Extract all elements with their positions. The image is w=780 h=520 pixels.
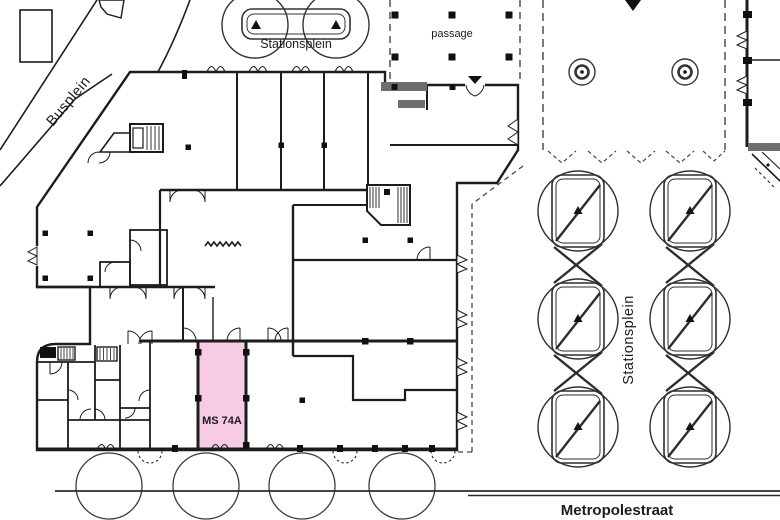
tree-canopy-symbol (76, 453, 142, 519)
label-busplein: Busplein (44, 73, 95, 129)
column-symbol (449, 12, 456, 19)
column-symbol (88, 231, 94, 237)
column-symbol (243, 395, 250, 402)
door-swing-icon (457, 255, 467, 273)
bullseye-column-icon (569, 59, 595, 85)
column-symbol (195, 395, 202, 402)
column-symbol (322, 143, 328, 149)
column-symbol (182, 70, 187, 79)
tree-canopy-symbol (269, 453, 335, 519)
building-east-annex (737, 0, 780, 187)
hatched-wall (381, 82, 427, 91)
column-symbol (407, 338, 414, 345)
column-symbol (743, 99, 752, 106)
column-symbol (743, 57, 752, 64)
door-swing-icon (457, 412, 467, 430)
hatched-wall (398, 100, 425, 108)
bench-zigzag (554, 352, 602, 394)
column-symbol (243, 442, 250, 449)
bench-zigzag (666, 352, 714, 394)
column-symbol (243, 349, 250, 356)
main-building: MS 74A (28, 67, 523, 464)
column-symbol (402, 445, 408, 452)
bullseye-column-icon (672, 59, 698, 85)
building-block-west (20, 10, 52, 62)
label-passage: passage (431, 28, 473, 40)
column-symbol (363, 238, 369, 244)
column-symbol (279, 143, 285, 149)
planter-bench-chain (650, 171, 730, 467)
tree-triangle-icon (251, 20, 261, 29)
floorplan: Busplein Stationsplein passage (0, 0, 780, 520)
column-symbol (362, 338, 369, 345)
floorplan-canvas: Busplein Stationsplein passage (0, 0, 780, 520)
column-symbol (450, 84, 456, 90)
column-symbol (384, 189, 390, 195)
column-symbol (408, 238, 414, 244)
column-symbol (429, 445, 435, 452)
shaft-symbol (40, 347, 56, 358)
column-symbol (43, 231, 49, 237)
tree-canopy-symbol (173, 453, 239, 519)
column-symbol (88, 276, 94, 282)
traffic-island (99, 0, 124, 18)
tree-canopy-symbol (369, 453, 435, 519)
dashed-edge (755, 168, 774, 187)
column-symbol (392, 84, 398, 90)
column-symbol (372, 445, 378, 452)
hatched-wall (748, 143, 780, 151)
tree-triangle-icon (331, 20, 341, 29)
north-marker-icon (625, 0, 641, 11)
column-symbol (743, 11, 752, 18)
column-symbol (297, 445, 303, 452)
column-symbol (506, 12, 513, 19)
annex-diagonal-wall (752, 154, 780, 181)
column-symbol (195, 349, 202, 356)
column-symbol (172, 445, 178, 452)
door-swing-icon (457, 358, 467, 376)
column-symbol (300, 398, 306, 404)
label-unit-ms74a: MS 74A (202, 415, 242, 427)
planter-bench-chain (538, 171, 618, 467)
column-symbol (506, 54, 513, 61)
column-symbol (392, 54, 399, 61)
passage-area: passage (390, 0, 520, 82)
column-symbol (392, 12, 399, 19)
canopy-zigzag-edge (548, 151, 725, 163)
label-metropolestraat: Metropolestraat (561, 502, 674, 519)
label-stationsplein-east: Stationsplein (621, 295, 637, 385)
column-symbol (337, 445, 343, 452)
plaza-stationsplein-north: Stationsplein (222, 0, 369, 58)
planters-stationsplein-east: Stationsplein (538, 171, 730, 467)
column-symbol (766, 163, 769, 166)
canopy-dashed-edge (458, 166, 523, 452)
column-symbol (43, 276, 49, 282)
column-symbol (449, 54, 456, 61)
unit-ms74a-highlight (199, 342, 245, 449)
canopy-dashed-area (543, 0, 725, 163)
door-swing-icon (457, 310, 467, 328)
label-stationsplein-north: Stationsplein (260, 37, 332, 51)
planter-box-inner (247, 14, 345, 34)
column-symbol (186, 145, 192, 151)
